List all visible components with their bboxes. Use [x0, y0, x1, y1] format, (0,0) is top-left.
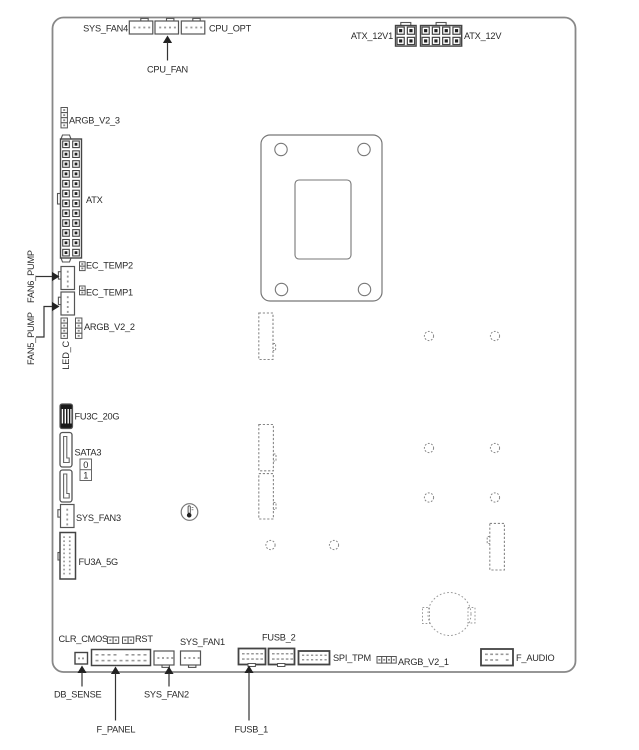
svg-text:ARGB_V2_3: ARGB_V2_3	[69, 116, 120, 126]
svg-text:SYS_FAN4: SYS_FAN4	[83, 24, 128, 34]
svg-text:EC_TEMP2: EC_TEMP2	[86, 261, 133, 271]
svg-text:LED_C: LED_C	[61, 340, 71, 369]
svg-text:0: 0	[83, 460, 88, 470]
svg-text:SPI_TPM: SPI_TPM	[333, 653, 371, 663]
svg-text:SYS_FAN2: SYS_FAN2	[144, 690, 189, 700]
svg-text:FAN6_PUMP: FAN6_PUMP	[26, 250, 36, 303]
svg-text:ATX_12V: ATX_12V	[464, 31, 502, 41]
svg-text:FU3C_20G: FU3C_20G	[75, 412, 120, 422]
svg-text:SYS_FAN1: SYS_FAN1	[180, 637, 225, 647]
svg-text:FUSB_1: FUSB_1	[235, 725, 269, 735]
svg-text:EC_TEMP1: EC_TEMP1	[86, 288, 133, 298]
svg-text:CPU_OPT: CPU_OPT	[209, 24, 252, 34]
svg-text:ATX_12V1: ATX_12V1	[351, 31, 393, 41]
svg-text:DB_SENSE: DB_SENSE	[54, 690, 101, 700]
svg-text:FUSB_2: FUSB_2	[262, 633, 296, 643]
svg-text:RST: RST	[135, 634, 153, 644]
svg-text:ARGB_V2_1: ARGB_V2_1	[398, 657, 449, 667]
svg-text:1: 1	[83, 471, 88, 481]
svg-text:SYS_FAN3: SYS_FAN3	[76, 513, 121, 523]
svg-text:SATA3: SATA3	[75, 448, 102, 458]
svg-text:ARGB_V2_2: ARGB_V2_2	[84, 322, 135, 332]
svg-text:F_AUDIO: F_AUDIO	[516, 653, 554, 663]
svg-text:ATX: ATX	[86, 195, 103, 205]
svg-text:FAN5_PUMP: FAN5_PUMP	[26, 312, 36, 365]
svg-text:F_PANEL: F_PANEL	[97, 725, 136, 735]
svg-text:FU3A_5G: FU3A_5G	[79, 557, 119, 567]
svg-text:CLR_CMOS: CLR_CMOS	[59, 634, 109, 644]
svg-text:CPU_FAN: CPU_FAN	[147, 65, 188, 75]
